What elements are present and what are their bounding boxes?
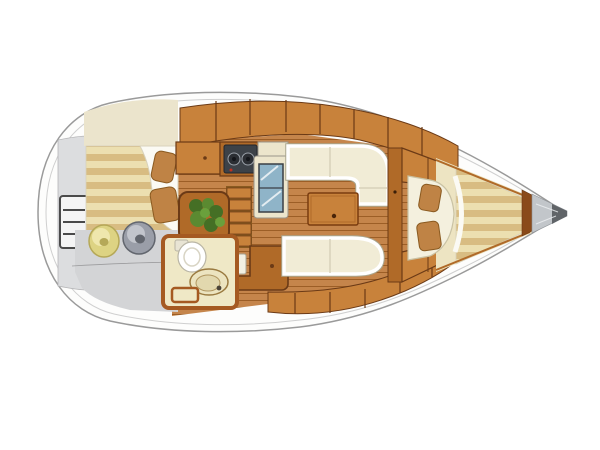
stove-knob	[230, 169, 233, 172]
pouf-gray	[123, 222, 155, 254]
head-compartment	[163, 236, 237, 308]
plant-table	[179, 192, 229, 241]
v-berth-pillow-1	[418, 183, 442, 212]
salon-table	[308, 193, 358, 225]
pouf-yellow	[89, 225, 119, 257]
galley-cabinet	[176, 142, 220, 174]
mast-post-dot	[332, 214, 336, 218]
aft-pillow-2	[149, 186, 181, 224]
head-step	[172, 288, 198, 302]
layout-canvas	[0, 0, 600, 450]
door-handle	[393, 190, 396, 193]
chart-table-handle	[270, 264, 274, 268]
boat-layout-plan	[0, 0, 600, 450]
galley-cabinet-handle	[203, 156, 207, 160]
fridge	[254, 156, 288, 218]
settee-port	[284, 238, 382, 274]
faucet	[217, 286, 222, 291]
anchor-locker	[522, 190, 567, 236]
v-berth-pillow-2	[416, 221, 442, 252]
